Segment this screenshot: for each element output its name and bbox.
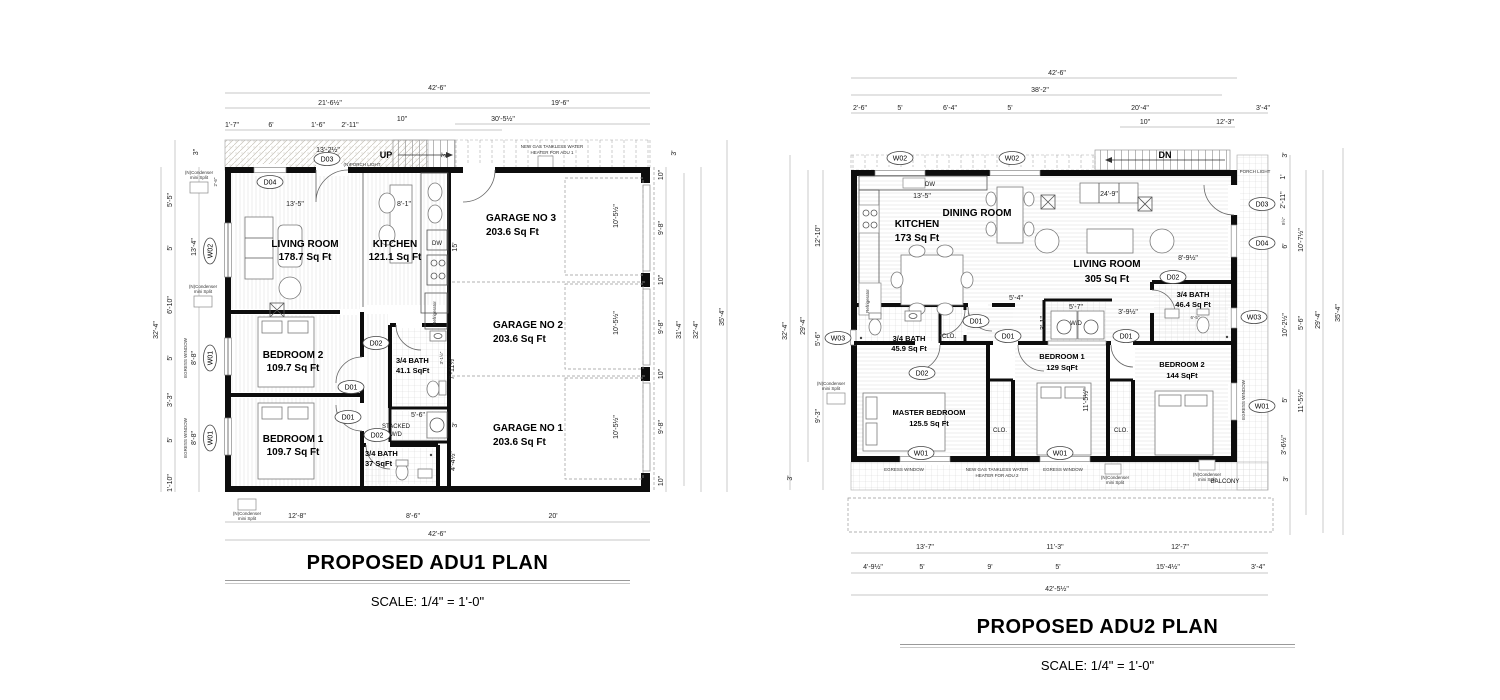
porch-light-note: PORCH LIGHT (1240, 169, 1271, 174)
room-area: 125.5 Sq Ft (909, 419, 949, 428)
room-label: GARAGE NO 1 (493, 423, 563, 434)
window-tag: W01 (908, 447, 934, 460)
door-tag: D02 (1160, 271, 1186, 284)
dishwasher-label: DW (925, 182, 935, 188)
dim-label: 32'-4" (693, 321, 700, 339)
dim-label: 9'-8" (658, 420, 665, 434)
condenser-note: mini Split (1106, 480, 1125, 485)
dim-label: 3' (441, 152, 448, 157)
room-area: 173 Sq Ft (895, 233, 940, 244)
dim-label: 10'-5½" (612, 311, 620, 335)
window-tag-label: W01 (914, 451, 929, 458)
dim-label: 8'-6" (406, 513, 420, 520)
dim-label: 3'-1" (1040, 316, 1047, 330)
dim-label: 3'-4" (1256, 105, 1270, 112)
dim-label: 42'-6" (428, 531, 446, 538)
dim-label: 6'-5" (1191, 315, 1200, 320)
plan-title: PROPOSED ADU1 PLAN (225, 552, 630, 575)
dim-label: 3' (1283, 476, 1290, 481)
dim-label: 4'-4½" (449, 451, 457, 471)
dim-label: 12'-3" (1216, 119, 1234, 126)
room-area: 109.7 Sq Ft (267, 363, 320, 374)
dim-label: 5' (167, 437, 174, 442)
dim-label: 6' (1282, 243, 1289, 248)
door-tag-label: D01 (1120, 334, 1133, 341)
room-label: MASTER BEDROOM (893, 408, 966, 417)
dim-label: 5'-6" (815, 332, 822, 346)
door-tag: D01 (963, 315, 989, 328)
window-tag-label: W02 (1005, 156, 1020, 163)
window-tag: W01 (204, 345, 217, 371)
water-heater-note: HEATER FOR ADU 2 (976, 473, 1019, 478)
floor-plan-sheet: 42'-6" 21'-6½" 19'-6" 1'-7" 6' 1'-6" 2'-… (0, 0, 1500, 700)
dim-label: 4'-9½" (863, 563, 883, 571)
water-heater-note: NEW GAS TANKLESS WATER (966, 467, 1029, 472)
dim-label: 24'-9" (1100, 191, 1118, 198)
window-tag-label: W01 (208, 431, 215, 446)
washer-dryer-label: W/D (1070, 321, 1082, 327)
window-tag-label: W03 (831, 336, 846, 343)
dim-label: 10" (658, 274, 665, 285)
dim-label: 8'-9½" (1178, 254, 1198, 262)
room-label: DINING ROOM (943, 208, 1012, 219)
window-tag-label: W03 (1247, 315, 1262, 322)
egress-window-note: EGRESS WINDOW (1043, 467, 1084, 472)
dim-label: 8'-8" (191, 431, 198, 445)
door-tag: D01 (995, 330, 1021, 343)
dim-label: 3' (452, 422, 459, 427)
room-label: 3/4 BATH (365, 449, 398, 458)
porch-light-note: (N)PORCH LIGHT (344, 162, 381, 167)
condenser-note: mini Split (822, 386, 841, 391)
room-label: KITCHEN (895, 219, 939, 230)
window-tag-label: W02 (208, 244, 215, 259)
dim-label: 8½" (1280, 217, 1286, 225)
room-area: 144 SqFt (1166, 371, 1198, 380)
dim-label: 42'-6" (1048, 70, 1066, 77)
window-tag-label: W02 (893, 156, 908, 163)
dim-label: 5'-6" (1298, 316, 1305, 330)
door-tag: D02 (909, 367, 935, 380)
egress-window-note: EGRESS WINDOW (183, 417, 188, 458)
dim-label: 1'-10" (167, 474, 174, 492)
dim-label: 10'-7½" (1297, 228, 1305, 252)
window-tag: W01 (204, 425, 217, 451)
dim-label: 3'-6½" (1280, 435, 1288, 455)
adu1-porch-and-stair (225, 140, 650, 170)
door-tag-label: D04 (264, 180, 277, 187)
room-area: 109.7 Sq Ft (267, 447, 320, 458)
dim-label: 9'-8" (658, 221, 665, 235)
room-label: 3/4 BATH (893, 334, 926, 343)
condenser-note: mini Split (190, 175, 209, 180)
dim-label: 15'-4½" (1156, 563, 1180, 571)
dim-label: 1' (1280, 174, 1287, 179)
room-label: BEDROOM 2 (263, 350, 324, 361)
dim-label: 11'-5½" (1297, 389, 1305, 413)
dim-label: 5'-4" (1009, 295, 1023, 302)
adu1-title-block: PROPOSED ADU1 PLAN SCALE: 1/4" = 1'-0" (225, 552, 630, 609)
dim-label: 42'-6" (428, 85, 446, 92)
room-area: 305 Sq Ft (1085, 274, 1130, 285)
dim-label: 35'-4" (719, 308, 726, 326)
room-area: 45.9 Sq Ft (891, 344, 927, 353)
dim-label: 9'-3" (815, 409, 822, 423)
room-label: GARAGE NO 3 (486, 213, 556, 224)
plan-scale: SCALE: 1/4" = 1'-0" (900, 658, 1295, 673)
dim-label: 12'-10" (815, 225, 822, 247)
dishwasher-label: DW (432, 241, 442, 247)
closet-label: CLO. (942, 334, 956, 340)
dim-label: 31'-4" (676, 321, 683, 339)
adu1-plan-drawing: 42'-6" 21'-6½" 19'-6" 1'-7" 6' 1'-6" 2'-… (150, 55, 780, 600)
room-area: 203.6 Sq Ft (493, 334, 546, 345)
dim-label: 38'-2" (1031, 87, 1049, 94)
dim-label: 5' (1282, 397, 1289, 402)
dim-label: 9' (987, 564, 992, 571)
door-tag-label: D01 (970, 319, 983, 326)
room-area: 203.6 Sq Ft (493, 437, 546, 448)
condenser-note: mini Split (238, 516, 257, 521)
room-area: 41.1 SqFt (396, 366, 430, 375)
room-label: LIVING ROOM (271, 239, 338, 250)
dim-label: 6'-10" (167, 296, 174, 314)
dim-label: 3'-4" (1251, 564, 1265, 571)
dim-label: 10'-5½" (612, 415, 620, 439)
dim-label: 20' (548, 513, 557, 520)
dim-label: 7'-11½" (448, 356, 456, 380)
dim-label: 3'-9½" (1118, 308, 1138, 316)
door-tag-label: D04 (1256, 241, 1269, 248)
dim-label: 5' (1007, 105, 1012, 112)
dim-label: 13'-5" (286, 201, 304, 208)
dim-label: 11'-3" (1046, 544, 1064, 551)
door-tag-label: D02 (1167, 275, 1180, 282)
dim-label: 8'-1" (397, 201, 411, 208)
dim-label: 5' (897, 105, 902, 112)
refrigerator-label: Refrigerator (865, 289, 870, 313)
door-tag-label: D03 (321, 157, 334, 164)
door-tag: D01 (335, 411, 361, 424)
dim-label: 9'-8" (658, 320, 665, 334)
window-tag: W01 (1047, 447, 1073, 460)
room-area: 178.7 Sq Ft (279, 252, 332, 263)
closet-label: CLO. (1114, 428, 1128, 434)
dim-label: 5' (167, 355, 174, 360)
dim-label: 3' (787, 475, 794, 480)
door-tag-label: D01 (345, 385, 358, 392)
dim-label: 3'-1½" (438, 351, 444, 364)
room-label: KITCHEN (373, 239, 417, 250)
dim-label: 13'-4" (191, 238, 198, 256)
window-tag: W01 (1249, 400, 1275, 413)
door-tag: D01 (338, 381, 364, 394)
room-area: 121.1 Sq Ft (369, 252, 422, 263)
room-area: 129 SqFt (1046, 363, 1078, 372)
window-tag-label: W01 (208, 351, 215, 366)
dim-label: 12'-7" (1171, 544, 1189, 551)
window-tag: W02 (204, 238, 217, 264)
dim-label: 13'-7" (916, 544, 934, 551)
dim-label: 6'-4" (943, 105, 957, 112)
dim-label: 1'-7" (225, 122, 239, 129)
window-tag: W03 (1241, 311, 1267, 324)
window-tag-label: W01 (1255, 404, 1270, 411)
dim-label: 21'-6½" (318, 99, 342, 107)
dim-label: 29'-4" (1315, 311, 1322, 329)
door-tag-label: D01 (1002, 334, 1015, 341)
dim-label: 5'-5" (167, 193, 174, 207)
refrigerator-label: Refrigerator (432, 301, 437, 325)
dim-label: 10" (1140, 119, 1151, 126)
door-tag-label: D02 (370, 341, 383, 348)
dim-label: 35'-4" (1335, 304, 1342, 322)
dim-label: 2'-6" (853, 105, 867, 112)
dim-label: 5' (1055, 564, 1060, 571)
dim-label: 10" (658, 169, 665, 180)
dim-label: 30'-5½" (491, 115, 515, 123)
room-label: 3/4 BATH (396, 356, 429, 365)
door-tag-label: D02 (916, 371, 929, 378)
dim-label: 2'-11" (341, 122, 359, 129)
door-tag: D02 (363, 337, 389, 350)
water-heater-note: HEATER FOR ADU 1 (531, 150, 574, 155)
door-tag: D03 (1249, 198, 1275, 211)
door-tag: D04 (1249, 237, 1275, 250)
stair-direction-label: DN (1159, 150, 1172, 160)
dim-label: 3'-3" (167, 393, 174, 407)
window-tag: W02 (999, 152, 1025, 165)
dim-label: 19'-6" (551, 100, 569, 107)
door-tag-label: D01 (342, 415, 355, 422)
condenser-note: mini Split (1198, 477, 1217, 482)
window-tag-label: W01 (1053, 451, 1068, 458)
dim-label: 1'-6" (311, 122, 325, 129)
dim-label: 10" (658, 368, 665, 379)
dim-label: 15' (452, 242, 459, 251)
window-tag: W02 (887, 152, 913, 165)
dim-label: 10'-5½" (612, 204, 620, 228)
adu2-plan-drawing: 42'-6" 38'-2" 2'-6" 5' 6'-4" 5' 20'-4" 3… (775, 55, 1400, 615)
dim-label: 42'-5½" (1045, 585, 1069, 593)
stacked-wd-label: STACKED (382, 424, 411, 430)
dim-label: 13'-5" (913, 193, 931, 200)
room-label: 3/4 BATH (1177, 290, 1210, 299)
dim-label: 3" (193, 148, 200, 155)
dim-label: 10" (658, 475, 665, 486)
condenser-note: mini Split (194, 289, 213, 294)
room-label: GARAGE NO 2 (493, 320, 563, 331)
dim-label: 32'-4" (782, 322, 789, 340)
plan-scale: SCALE: 1/4" = 1'-0" (225, 594, 630, 609)
dim-label: 8'-8" (191, 351, 198, 365)
room-label: BEDROOM 1 (263, 434, 324, 445)
dim-label: 2'-11" (1280, 191, 1287, 209)
dim-label: 3' (1282, 152, 1289, 157)
dim-label: 5'-6" (411, 412, 425, 419)
adu2-title-block: PROPOSED ADU2 PLAN SCALE: 1/4" = 1'-0" (900, 616, 1295, 673)
egress-window-note: EGRESS WINDOW (884, 467, 925, 472)
water-heater-note: NEW GAS TANKLESS WATER (521, 144, 584, 149)
room-label: LIVING ROOM (1073, 259, 1140, 270)
dim-label: 5' (919, 564, 924, 571)
room-label: BEDROOM 1 (1039, 352, 1084, 361)
title-rule (225, 580, 630, 584)
door-tag: D01 (1113, 330, 1139, 343)
title-rule (900, 644, 1295, 648)
door-tag: D03 (314, 153, 340, 166)
dim-label: 6' (268, 122, 273, 129)
stair-direction-label: UP (380, 150, 393, 160)
egress-window-note: EGRESS WINDOW (1241, 379, 1246, 420)
door-tag-label: D02 (371, 433, 384, 440)
dim-label: 29'-4" (800, 317, 807, 335)
plan-title: PROPOSED ADU2 PLAN (900, 616, 1295, 639)
dim-label: 32'-4" (153, 321, 160, 339)
dim-label: 5' (167, 245, 174, 250)
room-label: BEDROOM 2 (1159, 360, 1204, 369)
room-area: 46.4 Sq Ft (1175, 300, 1211, 309)
dim-label: 2'-6" (213, 177, 218, 186)
room-area: 37 SqFt (365, 459, 393, 468)
dim-label: 10" (397, 116, 408, 123)
closet-label: CLO. (993, 428, 1007, 434)
dim-label: 12'-8" (288, 513, 306, 520)
dim-label: 3' (671, 150, 678, 155)
egress-window-note: EGRESS WINDOW (183, 337, 188, 378)
door-tag-label: D03 (1256, 202, 1269, 209)
room-area: 203.6 Sq Ft (486, 227, 539, 238)
dim-label: 5'-7" (1069, 304, 1083, 311)
stacked-wd-label: W/D (390, 432, 402, 438)
door-tag: D04 (257, 176, 283, 189)
dim-label: 20'-4" (1131, 105, 1149, 112)
dim-label: 11'-5½" (1082, 388, 1090, 412)
door-tag: D02 (364, 429, 390, 442)
window-tag: W03 (825, 332, 851, 345)
dim-label: 10'-2½" (1281, 313, 1289, 337)
